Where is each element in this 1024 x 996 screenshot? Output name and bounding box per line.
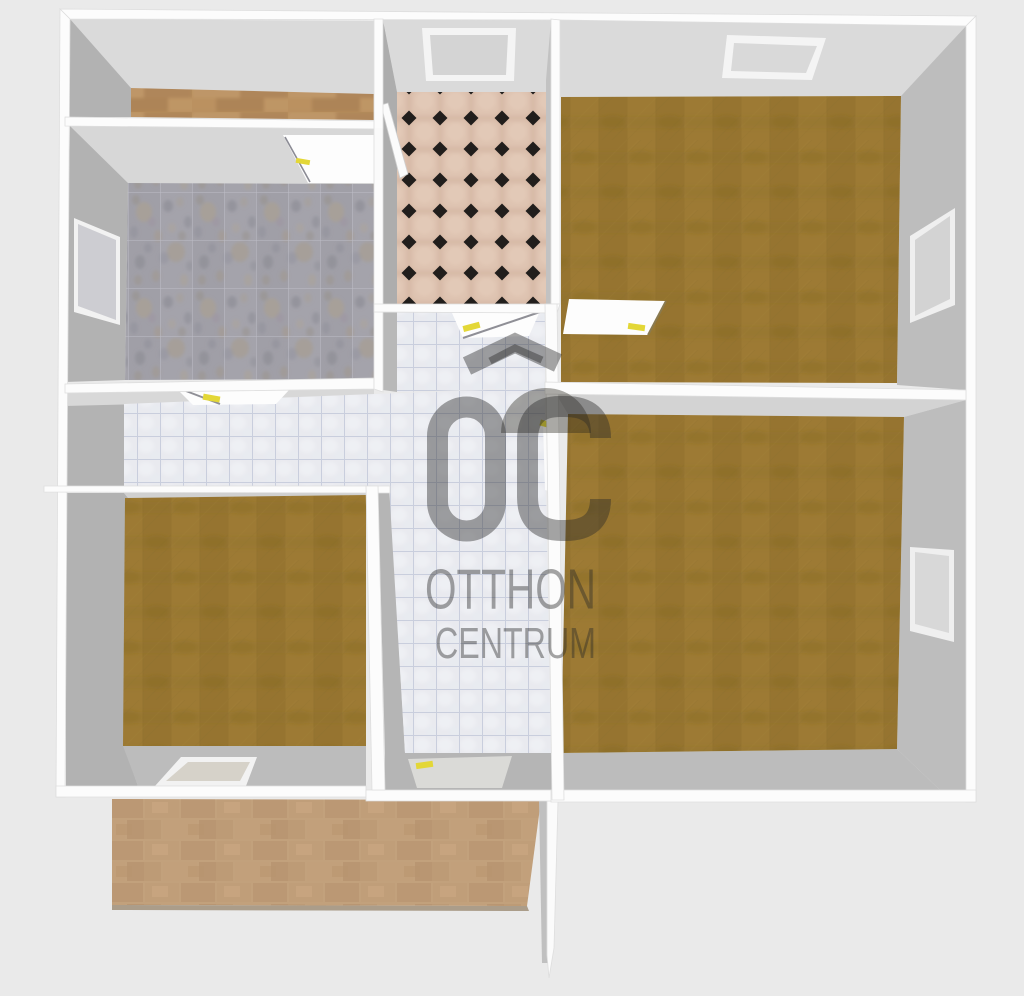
svg-text:OTTHON: OTTHON bbox=[425, 558, 596, 622]
svg-text:CENTRUM: CENTRUM bbox=[435, 620, 596, 668]
